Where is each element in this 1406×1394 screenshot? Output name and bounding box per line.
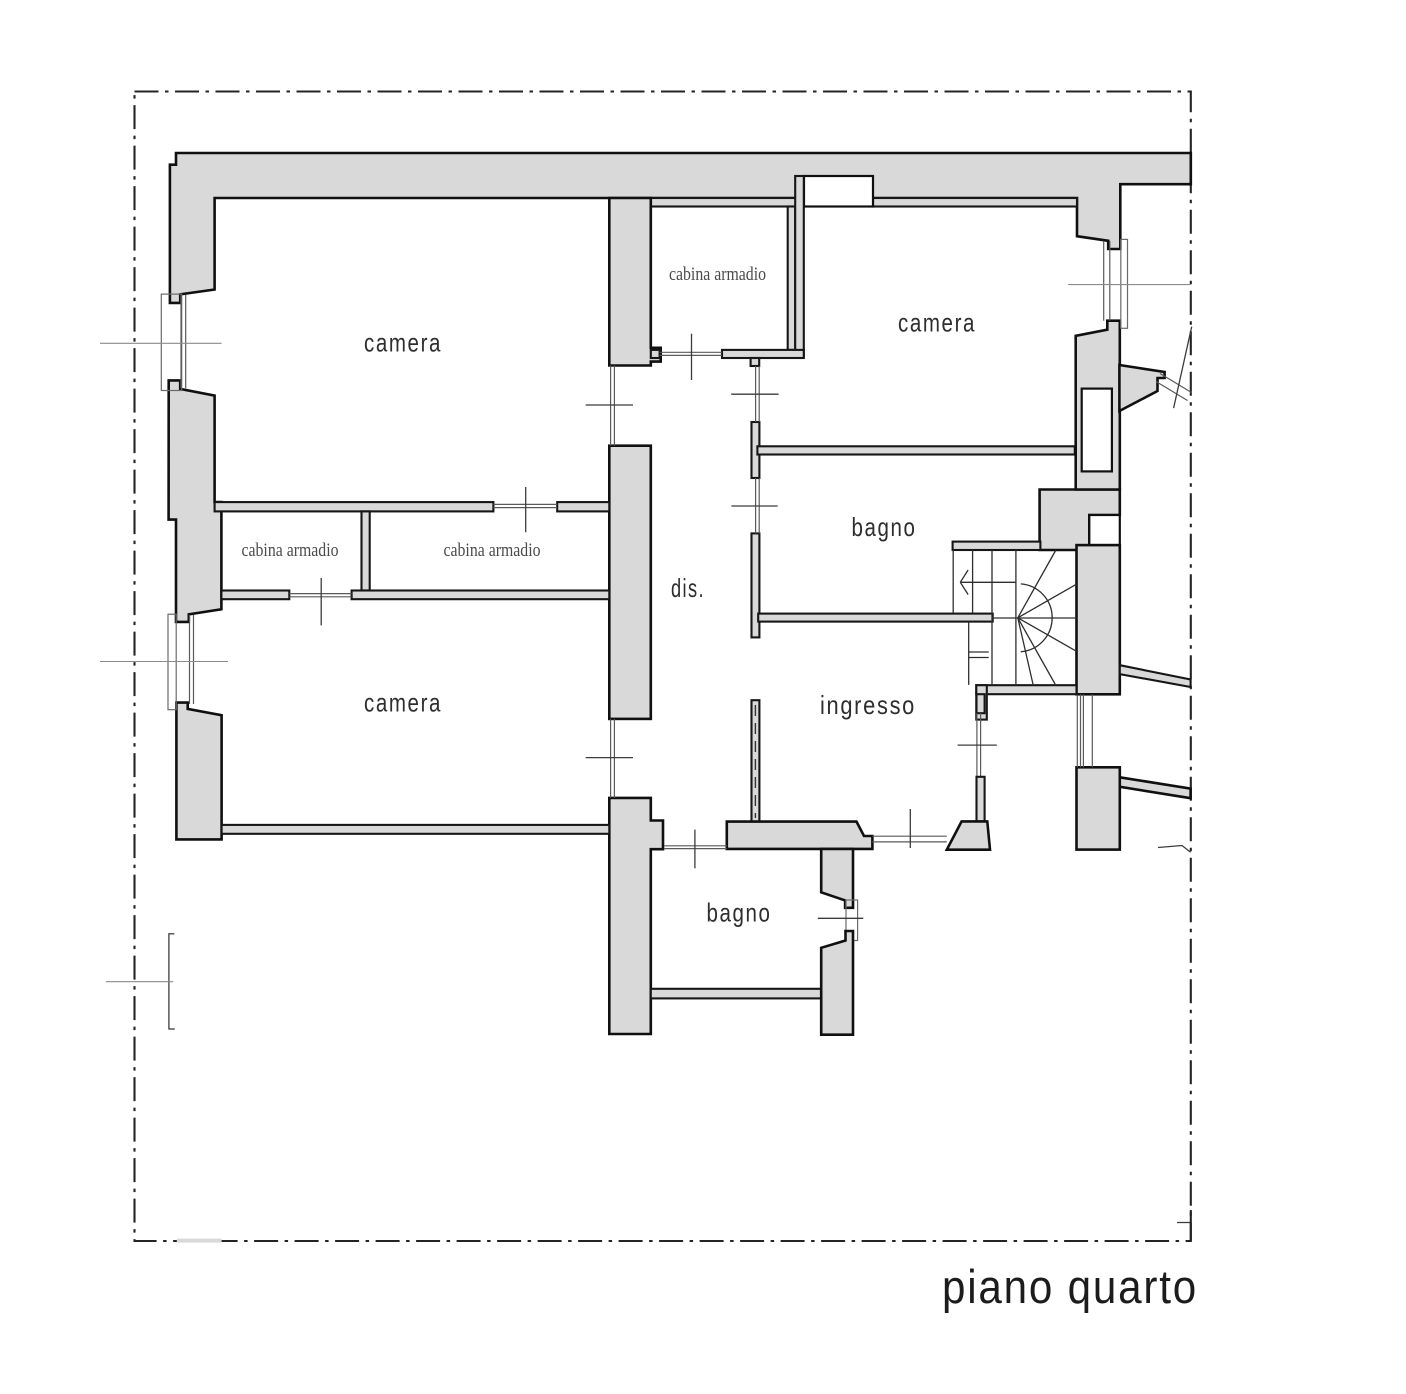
svg-text:cabina armadio: cabina armadio: [242, 540, 339, 561]
svg-text:piano quarto: piano quarto: [942, 1260, 1198, 1313]
svg-text:camera: camera: [364, 328, 442, 358]
svg-text:bagno: bagno: [852, 512, 917, 542]
svg-text:camera: camera: [898, 308, 976, 338]
svg-text:ingresso: ingresso: [820, 690, 916, 720]
svg-text:bagno: bagno: [707, 898, 772, 928]
svg-text:cabina armadio: cabina armadio: [669, 264, 766, 285]
svg-text:cabina armadio: cabina armadio: [444, 540, 541, 561]
svg-text:dis.: dis.: [671, 573, 705, 603]
svg-text:camera: camera: [364, 688, 442, 718]
